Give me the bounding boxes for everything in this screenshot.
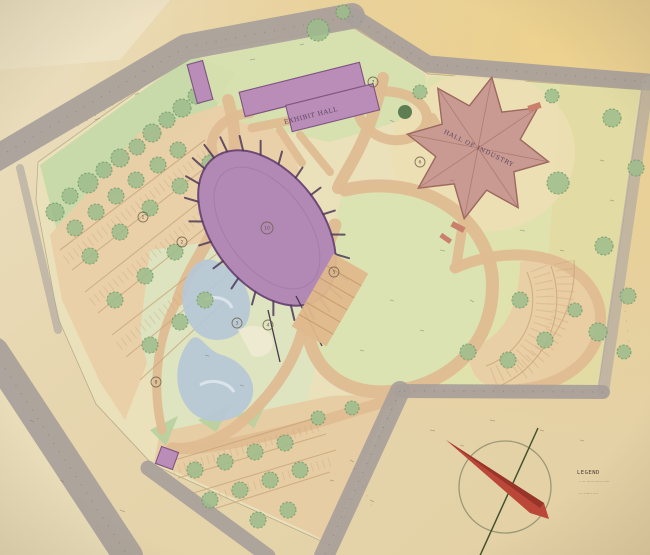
scanned-site-plan-photo: 10 EXHIBIT HALL (0, 0, 650, 555)
site-plan-drawing: 10 EXHIBIT HALL (0, 0, 650, 555)
photo-vignette (0, 0, 650, 555)
